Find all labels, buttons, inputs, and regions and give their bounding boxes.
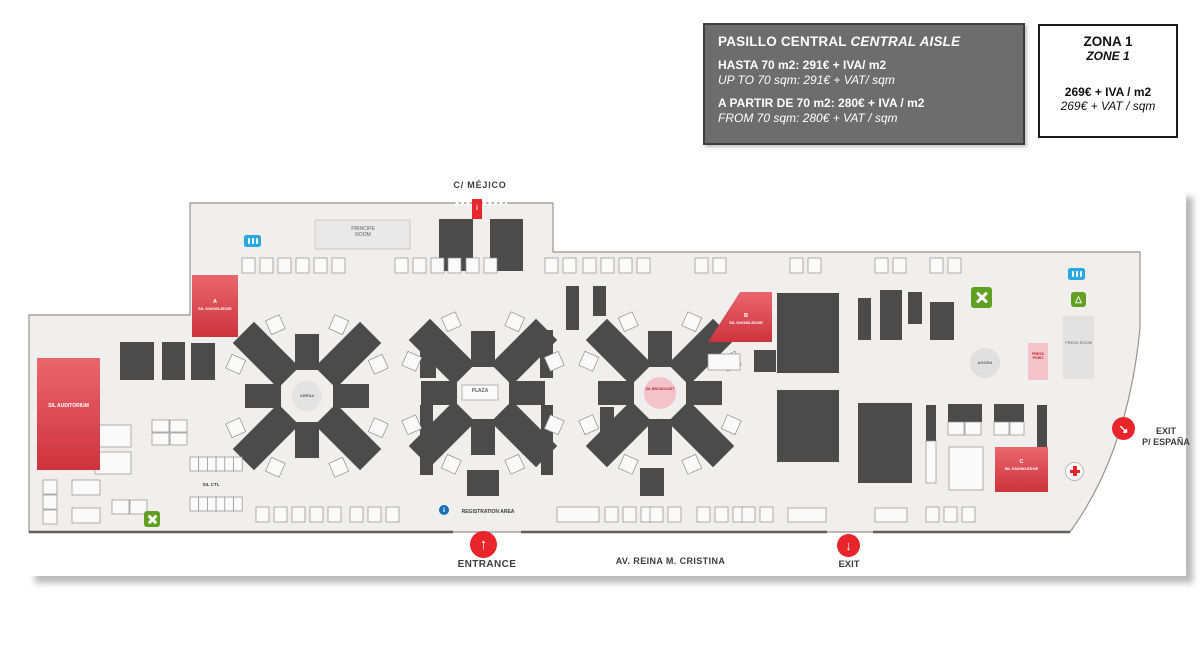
street-top-label: C/ MÉJICO bbox=[420, 180, 540, 191]
knowledge-a-name: SIL KNOWLEDGE bbox=[194, 306, 236, 311]
registration-area-label: REGISTRATION AREA bbox=[452, 509, 524, 515]
exit-espana-label: EXIT P/ ESPAÑA bbox=[1128, 426, 1200, 449]
info-icon: i bbox=[439, 505, 449, 515]
entrance-label: ENTRANCE bbox=[447, 559, 527, 572]
exit-espana-line1: EXIT bbox=[1128, 426, 1200, 437]
sil-knowledge-a-label: A SIL KNOWLEDGE bbox=[194, 299, 236, 311]
agora-label: AGORA bbox=[970, 360, 1000, 365]
sil-knowledge-c-label: C SIL KNOWLEDGE bbox=[998, 459, 1045, 471]
first-aid-icon bbox=[1065, 462, 1084, 481]
press-point-label: PRESS POINT bbox=[1028, 352, 1048, 361]
entrance-arrow-icon: ↑ bbox=[470, 531, 497, 558]
knowledge-a-letter: A bbox=[194, 299, 236, 306]
restaurant-icon bbox=[144, 511, 160, 527]
arena-label: ARENA bbox=[292, 393, 322, 398]
sil-ctl-label: SIL CTL bbox=[190, 482, 232, 488]
floorplan-map: C/ MÉJICO i AV. REINA M. CRISTINA ↑ ENTR… bbox=[0, 0, 1200, 658]
sil-broadcast-label: SIL BROADCAST bbox=[645, 387, 675, 391]
plaza-label: PLAZA bbox=[462, 388, 498, 394]
street-bottom-label: AV. REINA M. CRISTINA bbox=[598, 556, 743, 567]
entrance-arrow-glyph: ↑ bbox=[480, 536, 488, 553]
recycle-icon: △ bbox=[1071, 292, 1086, 307]
restaurant-icon bbox=[971, 287, 992, 308]
press-room-label: PRESS ROOM bbox=[1064, 340, 1093, 345]
exit-label: EXIT bbox=[827, 559, 871, 571]
info-glyph: i bbox=[443, 506, 445, 514]
street-entrance-marker-icon: i bbox=[472, 199, 482, 219]
wc-icon bbox=[1068, 268, 1085, 280]
principe-room-label: PRINCIPE ROOM bbox=[347, 226, 379, 239]
exit-espana-line2: P/ ESPAÑA bbox=[1128, 437, 1200, 448]
knowledge-b-letter: B bbox=[722, 313, 770, 320]
knowledge-c-name: SIL KNOWLEDGE bbox=[998, 466, 1045, 471]
knowledge-c-letter: C bbox=[998, 459, 1045, 466]
knowledge-b-name: SIL KNOWLEDGE bbox=[722, 320, 770, 325]
exit-arrow-glyph: ↓ bbox=[845, 538, 852, 553]
floorplan-page: PASILLO CENTRAL CENTRAL AISLE HASTA 70 m… bbox=[0, 0, 1200, 658]
recycle-glyph: △ bbox=[1075, 294, 1082, 305]
sil-knowledge-b-label: B SIL KNOWLEDGE bbox=[722, 313, 770, 325]
exit-arrow-icon: ↓ bbox=[837, 534, 860, 557]
sil-auditorium-label: SIL AUDITORIUM bbox=[48, 403, 89, 409]
wc-icon bbox=[244, 235, 261, 247]
